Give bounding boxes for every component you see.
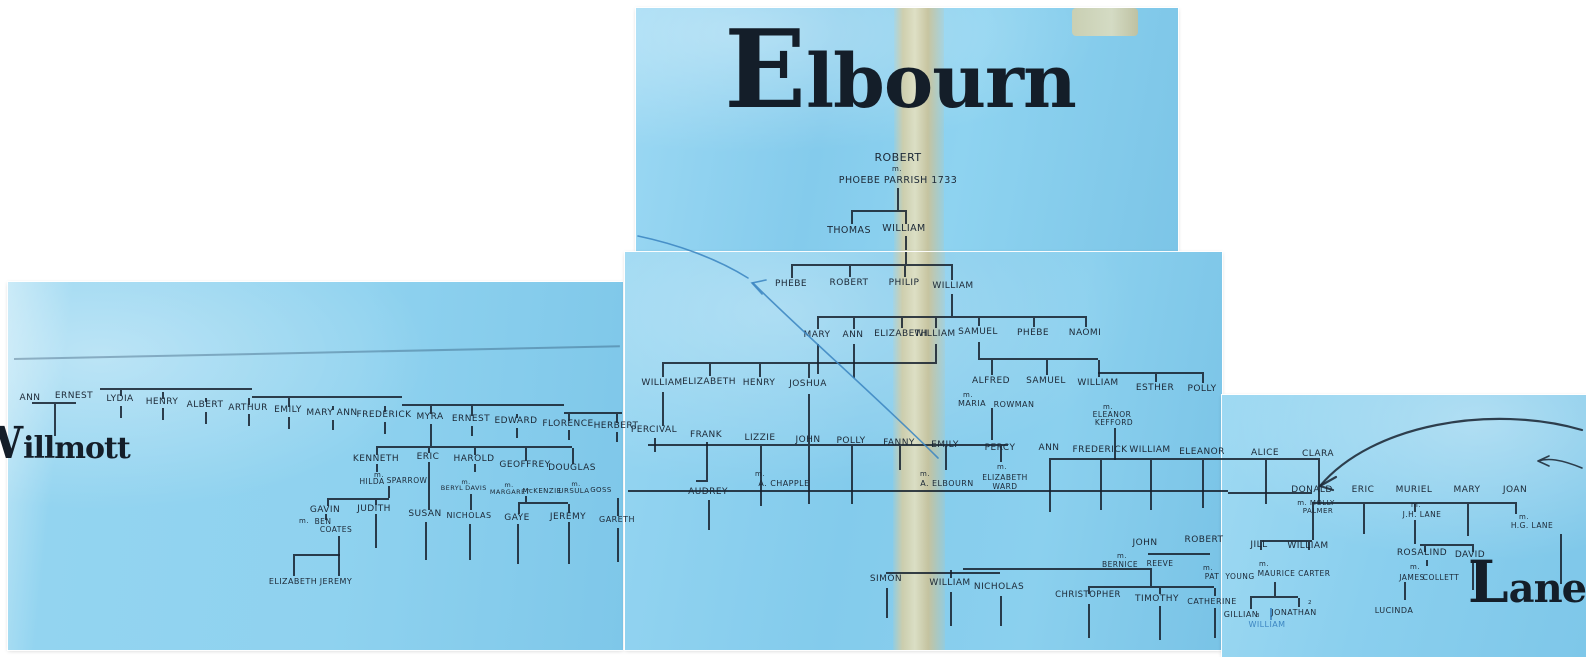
connector-line: [978, 358, 1098, 360]
connector-line: [384, 422, 386, 434]
connector-line: [1155, 374, 1157, 382]
name-label: WILLIAM: [1248, 621, 1285, 629]
name-label: m. MOLLY: [1297, 500, 1335, 507]
name-label: FANNY: [883, 439, 915, 448]
name-label: PHILIP: [889, 279, 920, 288]
connector-line: [1265, 460, 1267, 504]
name-label: H.G. LANE: [1511, 522, 1553, 530]
name-label: SAMUEL: [958, 328, 998, 337]
connector-line: [1250, 598, 1252, 609]
name-label: DONALD: [1291, 486, 1333, 495]
connector-line: [516, 428, 518, 438]
name-label: WILLIAM: [1077, 379, 1118, 388]
name-label: ANN: [843, 331, 864, 340]
name-label: NAOMI: [1069, 329, 1101, 338]
name-label: ROSALIND: [1397, 549, 1447, 558]
connector-line: [1318, 460, 1320, 504]
name-label: MYRA: [416, 413, 443, 422]
name-label: PHEBE: [775, 280, 807, 289]
connector-line: [817, 316, 1087, 318]
name-label: DAVIS: [465, 485, 487, 492]
connector-line: [617, 528, 619, 562]
connector-line: [1363, 504, 1365, 534]
name-label: JAMES: [1399, 574, 1424, 582]
connector-line: [205, 412, 207, 424]
connector-line: [853, 318, 855, 329]
connector-line: [1414, 520, 1416, 544]
surname-rest: lbourn: [806, 39, 1076, 125]
name-label: GILLIAN: [1224, 611, 1258, 619]
name-label: m.: [963, 392, 973, 399]
connector-line: [978, 342, 980, 358]
name-label: ELIZABETH: [269, 578, 317, 586]
connector-line: [853, 344, 855, 378]
connector-line: [470, 494, 472, 510]
name-label: CHRISTOPHER: [1055, 591, 1121, 600]
name-label: SIMON: [870, 575, 902, 584]
connector-line: [288, 417, 290, 429]
connector-line: [375, 514, 377, 548]
connector-line: [1202, 460, 1204, 508]
name-label: m.: [1117, 553, 1127, 560]
connector-line: [851, 446, 853, 504]
connector-line: [338, 536, 340, 556]
connector-line: [293, 554, 340, 556]
name-label: JOHN: [795, 436, 820, 445]
connector-line: [808, 364, 810, 378]
name-label: MARY: [1454, 486, 1481, 495]
connector-line: [120, 406, 122, 418]
connector-line: [430, 434, 432, 446]
name-label: GARETH: [599, 516, 635, 524]
name-label: JEREMY: [320, 578, 353, 586]
name-label: m.: [1519, 514, 1529, 521]
name-label: McKENZIE: [522, 488, 561, 495]
connector-line: [564, 412, 622, 414]
name-label: DOUGLAS: [548, 464, 596, 473]
connector-line: [1150, 460, 1152, 510]
name-label: WILLIAM: [1287, 542, 1328, 551]
connector-line: [808, 446, 810, 504]
name-label: ALICE: [1251, 449, 1279, 458]
connector-line: [162, 408, 164, 420]
connector-line: [1250, 596, 1298, 598]
connector-line: [662, 364, 664, 377]
name-label: SPARROW: [387, 477, 428, 485]
connector-line: [1515, 504, 1517, 514]
connector-line: [1148, 553, 1210, 555]
name-label: URSULA: [558, 488, 589, 495]
connector-line: [951, 294, 953, 316]
connector-line: [1312, 518, 1314, 540]
connector-line: [1150, 568, 1152, 586]
name-label: GAYE: [504, 514, 529, 523]
connector-line: [474, 464, 476, 472]
name-label: SAMUEL: [1026, 377, 1066, 386]
connector-line: [1100, 460, 1102, 510]
connector-line: [791, 266, 793, 278]
name-label: PALMER: [1303, 508, 1334, 515]
connector-line: [905, 236, 907, 250]
name-label: JONATHAN: [1271, 609, 1316, 617]
name-label: m.: [299, 518, 309, 525]
connector-line: [252, 396, 402, 398]
name-label: PHEBE: [1017, 329, 1049, 338]
connector-line: [708, 500, 710, 530]
name-label: HERBERT: [594, 422, 639, 431]
connector-line: [1298, 598, 1300, 607]
connector-line: [1049, 460, 1051, 512]
connector-line: [978, 318, 980, 326]
name-label: m.: [1259, 561, 1269, 568]
connector-line: [1098, 372, 1204, 374]
connector-line: [709, 364, 711, 376]
name-label: KEFFORD: [1095, 419, 1133, 427]
name-label: HENRY: [146, 398, 179, 407]
connector-line: [617, 498, 619, 516]
connector-line: [696, 480, 708, 482]
name-label: EMILY: [274, 406, 302, 415]
connector-line: [100, 388, 252, 390]
connector-line: [935, 344, 937, 362]
name-label: ELIZABETH: [982, 474, 1028, 482]
name-label: ROBERT: [874, 152, 921, 163]
name-label: ROWMAN: [994, 401, 1035, 409]
name-label: ALFRED: [972, 377, 1010, 386]
connector-line: [1426, 560, 1428, 566]
name-label: HENRY: [743, 379, 776, 388]
name-label: PERCY: [985, 444, 1016, 453]
connector-line: [54, 404, 56, 418]
name-label: WILLIAM: [641, 379, 682, 388]
name-label: LIZZIE: [744, 434, 775, 443]
connector-line: [469, 524, 471, 560]
connector-line: [1159, 606, 1161, 640]
name-label: NICHOLAS: [446, 512, 491, 520]
name-label: MARIA: [958, 400, 986, 408]
connector-line: [1202, 374, 1204, 383]
connector-line: [402, 404, 564, 406]
name-label: PHOEBE PARRISH 1733: [839, 176, 957, 186]
connector-line: [1000, 596, 1002, 626]
name-label: LUCINDA: [1375, 607, 1414, 615]
name-label: COATES: [320, 526, 352, 534]
name-label: MURIEL: [1396, 486, 1433, 495]
surname-rest: illmott: [23, 431, 130, 466]
connector-line: [572, 448, 574, 464]
name-label: JOAN: [1503, 486, 1527, 495]
connector-line: [1114, 428, 1116, 460]
name-label: A. CHAPPLE: [758, 480, 809, 488]
name-label: PAT: [1205, 573, 1220, 581]
name-label: JUDITH: [357, 505, 391, 514]
name-label: ELIZABETH: [682, 378, 736, 387]
name-label: WARD: [993, 483, 1018, 491]
name-label: WILLIAM: [929, 579, 970, 588]
connector-line: [899, 446, 901, 470]
name-label: WILLIAM: [882, 224, 925, 234]
name-label: HAROLD: [454, 455, 495, 464]
connector-line: [1214, 608, 1216, 638]
name-label: FREDERICK: [1073, 446, 1128, 455]
connector-line: [1033, 318, 1035, 327]
connector-line: [935, 318, 937, 328]
name-label: LYDIA: [106, 395, 133, 404]
connector-line: [654, 438, 656, 452]
connector-line: [518, 502, 568, 504]
name-label: FLORENCE: [542, 420, 593, 429]
name-label: CATHERINE: [1187, 598, 1236, 606]
name-label: COLLETT: [1423, 574, 1459, 582]
name-label: GAVIN: [310, 506, 340, 515]
tape-blotch: [1072, 8, 1138, 36]
name-label: ERNEST: [452, 415, 490, 424]
connector-line: [616, 432, 618, 442]
connector-line: [430, 424, 432, 434]
connector-line: [897, 188, 899, 210]
connector-line: [327, 498, 389, 500]
connector-line: [662, 362, 937, 364]
name-label: ELEANOR: [1179, 448, 1225, 457]
name-label: m.: [920, 471, 930, 478]
name-label: THOMAS: [827, 226, 871, 236]
name-label: NICHOLAS: [974, 583, 1024, 592]
connector-line: [1049, 458, 1320, 460]
connector-line: [428, 462, 430, 510]
name-label: CLARA: [1302, 450, 1334, 459]
connector-line: [1404, 582, 1406, 600]
connector-line: [950, 592, 952, 626]
connector-line: [662, 392, 664, 426]
connector-line: [759, 364, 761, 377]
name-label: MAURICE CARTER: [1258, 570, 1331, 578]
name-label: JOHN: [1132, 539, 1157, 548]
connector-line: [851, 212, 853, 224]
family-surname-willmott: Willmott: [0, 424, 130, 463]
connector-line: [851, 210, 907, 212]
name-label: MARY: [804, 331, 831, 340]
name-label: REEVE: [1147, 560, 1174, 568]
connector-line: [293, 556, 295, 576]
name-label: ERNEST: [55, 392, 93, 401]
name-label: A. ELBOURN: [920, 480, 973, 488]
connector-line: [568, 430, 570, 440]
name-label: BERNICE: [1102, 561, 1138, 569]
connector-line: [517, 524, 519, 564]
name-label: EMILY: [931, 441, 959, 450]
name-label: EDWARD: [494, 417, 537, 426]
name-label: ROBERT: [830, 279, 869, 288]
name-label: KENNETH: [353, 455, 399, 464]
name-label: MARY ANN: [306, 409, 357, 418]
family-surname-elbourn: Elbourn: [724, 22, 1076, 119]
surname-initial: W: [0, 418, 22, 469]
name-label: ALBERT: [187, 401, 224, 410]
connector-line: [1274, 582, 1276, 596]
connector-line: [817, 344, 819, 374]
connector-line: [338, 556, 340, 576]
name-label: GEOFFREY: [499, 461, 550, 470]
name-label: ARTHUR: [228, 404, 268, 413]
name-label: POLLY: [1187, 385, 1216, 394]
surname-rest: ane: [1509, 565, 1586, 612]
connector-line: [706, 442, 708, 480]
name-label: J.H. LANE: [1403, 511, 1442, 519]
name-label: ERIC: [1352, 486, 1375, 495]
name-label: m.: [1411, 502, 1421, 509]
connector-line: [1467, 504, 1469, 536]
connector-line: [991, 408, 993, 440]
connector-line: [950, 570, 952, 578]
connector-line: [1098, 360, 1100, 377]
name-label: JEREMY: [550, 513, 586, 522]
connector-line: [817, 318, 819, 329]
name-label: YOUNG: [1225, 573, 1254, 581]
connector-line: [886, 572, 1000, 574]
connector-line: [791, 264, 953, 266]
name-label: m.: [892, 166, 902, 173]
connector-line: [1085, 318, 1087, 327]
name-label: FRANK: [690, 431, 722, 440]
name-label: GOSS: [590, 487, 612, 494]
connector-line: [568, 522, 570, 564]
connector-line: [248, 414, 250, 426]
name-label: AUDREY: [688, 488, 728, 497]
name-label: m.: [997, 464, 1007, 471]
connector-line: [905, 252, 907, 264]
connector-line: [332, 420, 334, 430]
name-label: POLLY: [836, 437, 865, 446]
surname-initial: L: [1468, 548, 1508, 616]
name-label: ERIC: [417, 453, 440, 462]
connector-line: [886, 588, 888, 618]
name-label: m.: [1410, 564, 1420, 571]
name-label: 3: [1256, 614, 1260, 620]
name-label: m.: [1203, 565, 1213, 572]
connector-line: [1420, 544, 1474, 546]
family-surname-lane: Lane: [1468, 556, 1586, 608]
name-label: WILLIAM: [932, 282, 973, 291]
name-label: SUSAN: [408, 510, 441, 519]
name-label: TIMOTHY: [1135, 595, 1179, 604]
name-label: HILDA: [359, 478, 384, 486]
connector-line: [1088, 604, 1090, 638]
connector-line: [425, 522, 427, 560]
name-label: ESTHER: [1136, 384, 1174, 393]
name-label: ANN: [1039, 444, 1060, 453]
name-label: WILLIAM: [914, 330, 955, 339]
connector-line: [471, 426, 473, 436]
name-label: WILLIAM: [1129, 446, 1170, 455]
name-label: FREDERICK: [357, 411, 412, 420]
connector-line: [1088, 586, 1214, 588]
name-label: JOSHUA: [789, 380, 827, 389]
connector-line: [991, 360, 993, 375]
name-label: 2: [1308, 601, 1312, 607]
name-label: m.: [755, 471, 765, 478]
connector-line: [951, 266, 953, 280]
connector-line: [388, 486, 390, 498]
connector-line: [1214, 588, 1216, 596]
connector-line: [904, 266, 906, 277]
surname-initial: E: [724, 7, 805, 133]
family-tree-photo-collage: ROBERTm.PHOEBE PARRISH 1733THOMASWILLIAM…: [0, 0, 1586, 657]
connector-line: [849, 266, 851, 277]
connector-line: [1046, 360, 1048, 375]
connector-line: [901, 318, 903, 328]
name-label: BERYL: [441, 485, 464, 492]
name-label: JILL: [1250, 541, 1267, 550]
name-label: ROBERT: [1185, 536, 1224, 545]
name-label: ANN: [20, 394, 41, 403]
